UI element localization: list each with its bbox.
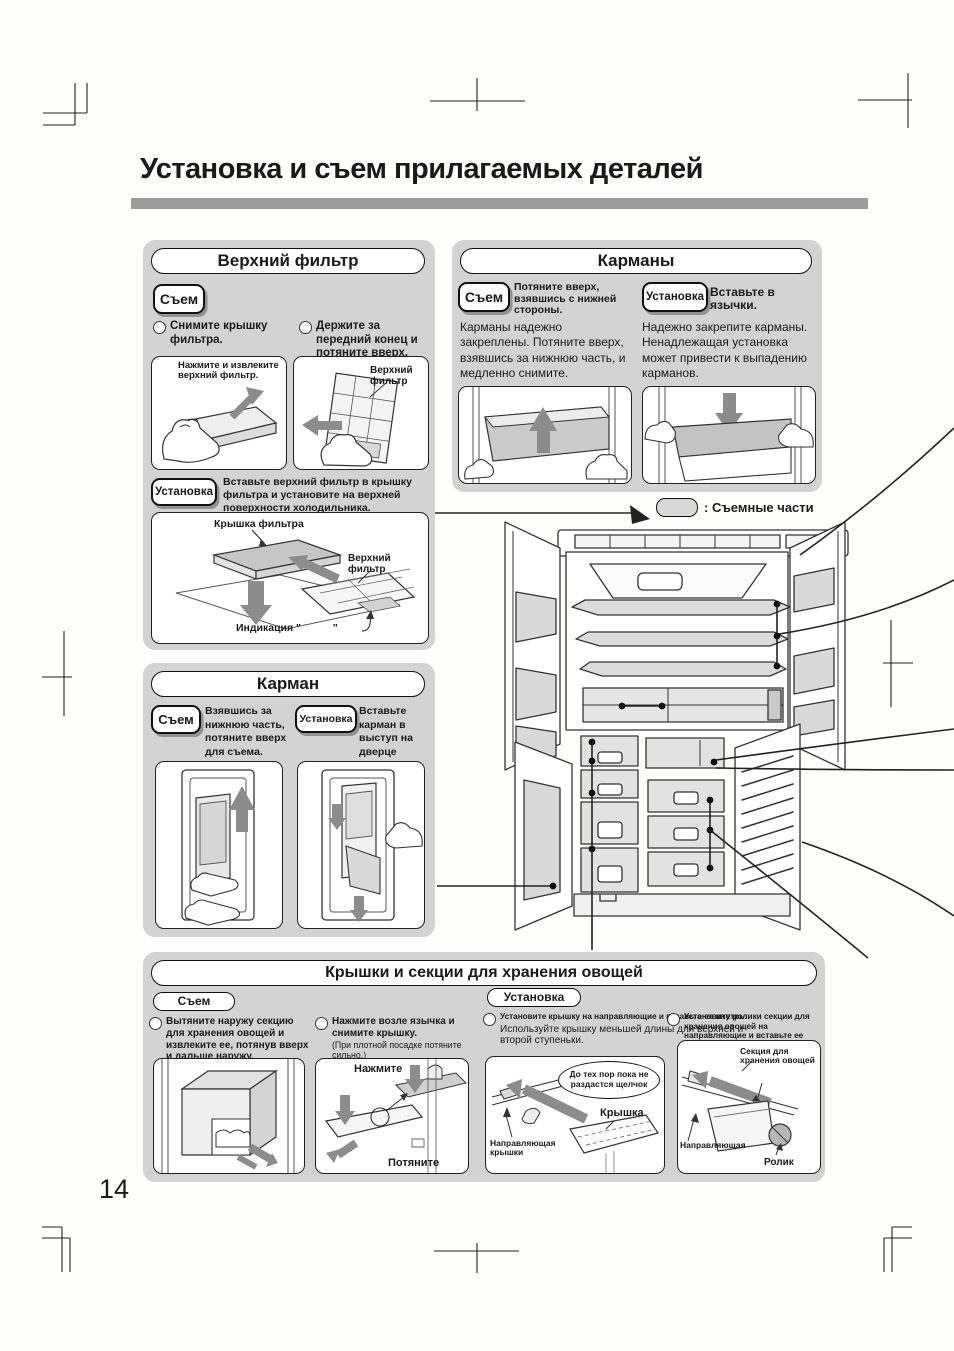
figure-press-extract-filter: Нажмите и извлеките верхний фильтр.: [151, 356, 287, 470]
figure-door-pocket-install: [297, 761, 425, 929]
indication-close: ": [333, 622, 338, 634]
roller-label: Ролик: [764, 1157, 794, 1168]
panel-title: Карман: [151, 671, 425, 697]
panel-pocket: Карман Съем Взявшись за нижнюю часть, по…: [143, 663, 435, 937]
page-number: 14: [99, 1174, 129, 1205]
step-bullet-icon: [483, 1013, 496, 1026]
callout-dots: [550, 601, 781, 890]
step-bullet-icon: [299, 321, 312, 334]
step-main: Нажмите возле язычка и снимите крышку.: [332, 1016, 477, 1040]
figure-pocket-install: [642, 386, 816, 484]
page-title: Установка и съем прилагаемых деталей: [140, 153, 703, 186]
pull-arrow-icon: [326, 1149, 340, 1163]
figure-section-rollers: Секция для хранения овощей Направляющая …: [677, 1040, 821, 1174]
step-text: Нажмите возле язычка и снимите крышку. (…: [332, 1016, 477, 1060]
removable-part-chip-icon: [656, 498, 698, 517]
step-text: Держите за передний конец и потяните вве…: [316, 320, 429, 361]
figure-filter-exploded: Крышка фильтра Верхний фильтр Индикация …: [151, 512, 429, 644]
step-text: Снимите крышку фильтра.: [170, 320, 289, 347]
diagram-label-cover: Крышка фильтра: [214, 519, 304, 531]
diagram-label-filter: Верхний фильтр: [348, 553, 424, 575]
figure-caption: Нажмите и извлеките верхний фильтр.: [178, 361, 282, 382]
step-bullet-icon: [149, 1017, 162, 1030]
step-note: (При плотной посадке потяните сильно.): [332, 1040, 477, 1060]
title-rule: [131, 198, 868, 209]
figure-pocket-removal: [458, 386, 632, 484]
figure-door-pocket-removal: [155, 761, 283, 929]
door-pocket-lift-illustration: [156, 762, 282, 928]
legend-arrowhead-icon: [630, 505, 650, 524]
panel-title: Верхний фильтр: [151, 248, 425, 274]
cover-press-illustration: [316, 1059, 468, 1173]
indication-open: Индикация ": [236, 622, 301, 634]
step-item: Держите за передний конец и потяните вве…: [299, 320, 429, 361]
install-caption: Вставьте в язычки.: [710, 286, 820, 312]
install-badge: Установка: [151, 478, 217, 506]
hand-icon: [216, 1130, 250, 1147]
step-bullet-icon: [153, 321, 166, 334]
figure-cover-press-pull: Нажмите Потяните: [315, 1058, 469, 1174]
guide-label: Направляющая крышки: [490, 1139, 560, 1158]
panel-title: Крышки и секции для хранения овощей: [151, 960, 817, 986]
figure-veg-section-pull: [153, 1058, 305, 1174]
guide-label: Направляющая: [680, 1141, 752, 1150]
step-item: Установите крышку на направляющие и вста…: [483, 1012, 667, 1046]
removal-badge: Съем: [151, 705, 201, 734]
removal-badge: Съем: [153, 284, 205, 314]
removable-parts-legend: : Съемные части: [656, 498, 814, 517]
cover-label: Крышка: [600, 1107, 644, 1119]
pocket-lift-illustration: [459, 387, 631, 483]
step-bullet-icon: [667, 1013, 680, 1026]
hand-icon: [465, 460, 494, 479]
left-arrow-icon: [302, 415, 318, 436]
pocket-insert-illustration: [643, 387, 815, 483]
removal-caption: Потяните вверх, взявшись с нижней сторон…: [514, 282, 632, 317]
figure-cover-install: До тех пор пока не раздастся щелчок Крыш…: [485, 1056, 665, 1174]
manual-page: Установка и съем прилагаемых деталей Вер…: [0, 0, 954, 1351]
legend-label: : Съемные части: [704, 500, 814, 515]
figure-hold-filter: Верхний фильтр: [293, 356, 429, 470]
step-item: Снимите крышку фильтра.: [153, 320, 289, 347]
diagram-label-indication: Индикация " ": [236, 623, 338, 635]
hand-icon: [645, 421, 675, 443]
install-caption: Вставьте карман в выступ на дверце: [359, 705, 431, 760]
install-text: Вставьте верхний фильтр в крышку фильтра…: [223, 476, 429, 515]
panel-title: Карманы: [460, 248, 812, 274]
pull-label: Потяните: [388, 1157, 439, 1169]
veg-box-illustration: [154, 1059, 304, 1173]
clip-icon: [522, 1108, 540, 1123]
panel-top-filter: Верхний фильтр Съем Снимите крышку фильт…: [143, 240, 435, 650]
step-text: Вытяните наружу секцию для хранения овощ…: [166, 1016, 313, 1063]
panel-veg-covers: Крышки и секции для хранения овощей Съем…: [143, 952, 825, 1182]
step-bullet-icon: [315, 1017, 328, 1030]
install-text: Надежно закрепите карманы. Ненадлежащая …: [642, 320, 816, 381]
panel-pockets: Карманы Съем Потяните вверх, взявшись с …: [452, 240, 822, 492]
install-badge: Установка: [295, 705, 357, 733]
click-bubble: До тех пор пока не раздастся щелчок: [558, 1061, 660, 1099]
fridge-line-art: [505, 522, 848, 930]
figure-label: Верхний фильтр: [370, 365, 424, 387]
hand-icon: [586, 455, 627, 479]
install-pill: Установка: [487, 988, 581, 1007]
removal-caption: Взявшись за нижнюю часть, потяните вверх…: [205, 705, 293, 760]
install-badge: Установка: [642, 282, 708, 312]
removal-text: Карманы надежно закреплены. Потяните вве…: [460, 320, 632, 381]
step-item: Нажмите возле язычка и снимите крышку. (…: [315, 1016, 477, 1060]
press-label: Нажмите: [354, 1063, 402, 1075]
section-label: Секция для хранения овощей: [740, 1047, 816, 1066]
removal-badge: Съем: [458, 282, 510, 312]
step-item: Вытяните наружу секцию для хранения овощ…: [149, 1016, 313, 1063]
door-pocket-insert-illustration: [298, 762, 424, 928]
removal-pill: Съем: [153, 992, 235, 1011]
